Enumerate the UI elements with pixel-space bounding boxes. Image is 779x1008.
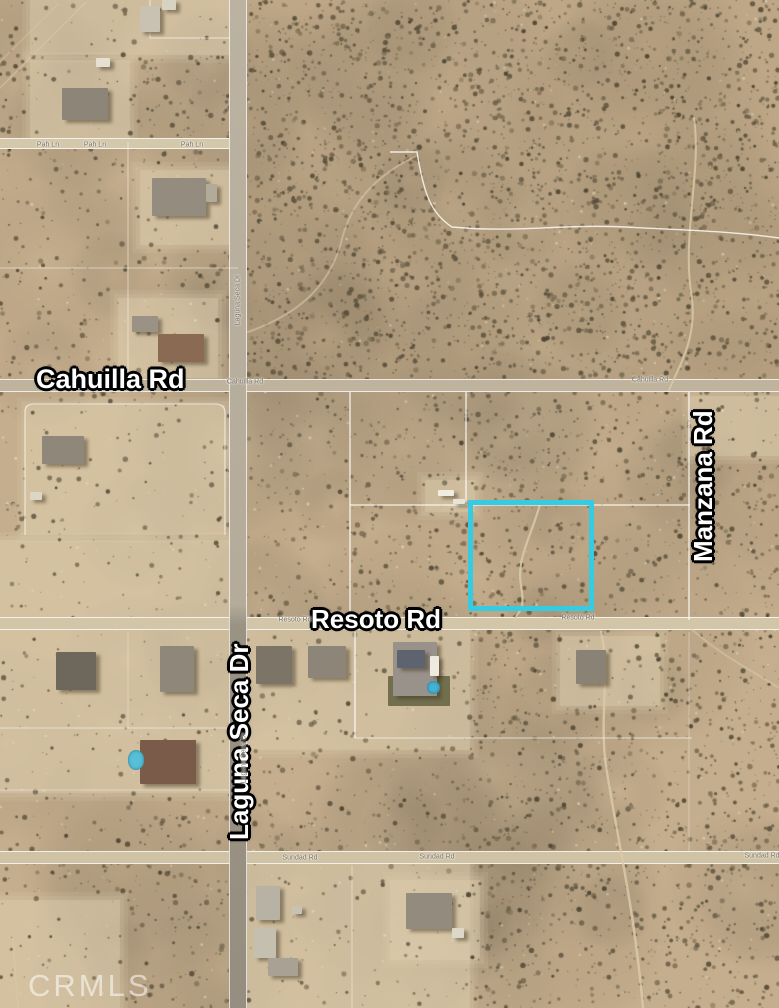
building: [308, 646, 346, 678]
building: [397, 650, 425, 668]
building: [62, 88, 108, 120]
building: [438, 490, 454, 496]
building: [256, 646, 292, 684]
road-label-small: Pah Ln: [181, 142, 203, 149]
building: [162, 0, 176, 10]
building: [256, 886, 280, 920]
crmls-watermark: CRMLS: [28, 968, 152, 1004]
building: [206, 184, 217, 202]
building: [56, 652, 96, 690]
road-label-laguna-seca: Laguna Seca Dr: [224, 643, 255, 840]
building: [452, 928, 464, 938]
building: [140, 740, 196, 784]
building: [292, 906, 302, 914]
highlighted-parcel: [468, 500, 594, 611]
building: [42, 436, 84, 464]
pool: [427, 681, 440, 694]
building: [254, 928, 276, 958]
road-label-small: Cahuilla Rd: [227, 379, 263, 386]
building: [576, 650, 606, 684]
road-label-small: Cahuilla Rd: [632, 377, 668, 384]
parcel-lines-and-trails: [0, 0, 779, 1008]
road-label-small: Laguna Seca Dr: [241, 733, 248, 784]
building: [453, 499, 465, 504]
building: [160, 646, 194, 692]
road-label-small: Resoto Rd: [278, 617, 311, 624]
road-label-small: Resoto Rd: [561, 615, 594, 622]
building: [406, 893, 452, 929]
road-label-small: Sundad Rd: [282, 855, 317, 862]
road-label-small: Laguna Seca Dr: [235, 275, 242, 326]
road-label-cahuilla: Cahuilla Rd: [36, 364, 185, 395]
road-label-small: Pah Ln: [84, 142, 106, 149]
aerial-map: Cahuilla Rd Resoto Rd Manzana Rd Laguna …: [0, 0, 779, 1008]
road-label-manzana: Manzana Rd: [688, 410, 719, 562]
building: [158, 334, 204, 362]
building: [96, 58, 110, 67]
road-label-small: Sundad Rd: [419, 854, 454, 861]
building: [140, 6, 160, 32]
building: [132, 316, 158, 332]
pool: [128, 750, 144, 770]
building: [268, 958, 298, 976]
road-label-resoto: Resoto Rd: [311, 604, 441, 635]
building: [30, 492, 42, 500]
building: [430, 656, 439, 676]
road-label-small: Pah Ln: [37, 142, 59, 149]
building: [152, 178, 206, 216]
road-label-small: Sundad Rd: [744, 853, 779, 860]
